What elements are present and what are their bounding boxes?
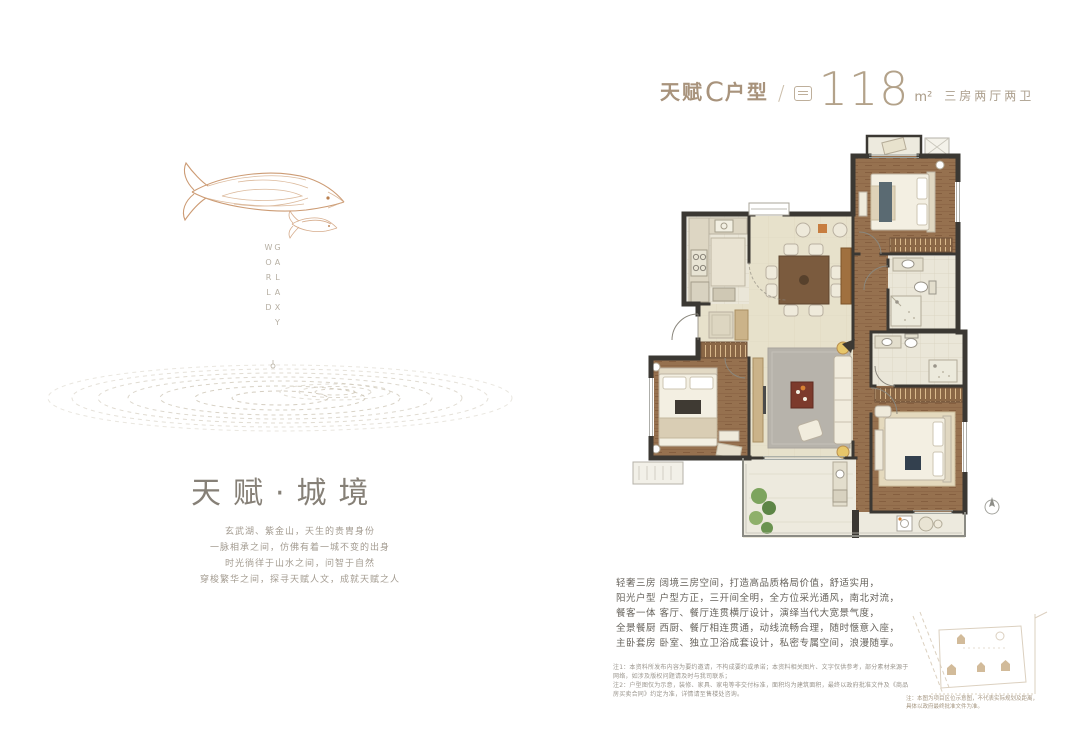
poem-line: 一脉相承之间，仿佛有着一城不变的出身	[170, 540, 430, 556]
fish-line-art	[178, 158, 358, 246]
legal-disclaimer: 注1：本资料所发布内容为要约邀请，不构成要约或承诺；本资料相关图片、文字仅供参考…	[613, 663, 909, 699]
unit-header: 天赋 C 户型 / 118 m² 三房两厅两卫	[660, 62, 1034, 112]
small-fish	[289, 211, 337, 238]
caption-line: 注：本图为项目区位示意图，不代表实际规划及距离，	[906, 695, 1061, 703]
feature-line: 轻奢三房 阔境三房空间，打造高品质格局价值，舒适实用，	[616, 576, 921, 591]
corridor-floor	[853, 254, 888, 332]
brand-poem: 玄武湖、紫金山，天生的贵胄身份 一脉相承之间，仿佛有着一城不变的出身 时光徜徉于…	[170, 524, 430, 588]
unit-type-variant: C	[704, 77, 725, 108]
feature-line: 餐客一体 客厅、餐厅连贯横厅设计，演绎当代大宽景气度，	[616, 606, 921, 621]
area-badge-icon	[794, 86, 812, 101]
poem-line: 时光徜徉于山水之间，问智于自然	[170, 556, 430, 572]
feature-description: 轻奢三房 阔境三房空间，打造高品质格局价值，舒适实用， 阳光户型 户型方正，三开…	[616, 576, 921, 651]
site-sketch-caption: 注：本图为项目区位示意图，不代表实际规划及距离， 具体以政府最终批准文件为准。	[906, 695, 1061, 711]
poem-line: 穿梭繁华之间，探寻天赋人文，成就天赋之人	[170, 572, 430, 588]
rooms-label: 三房两厅两卫	[944, 87, 1034, 104]
feature-line: 全景餐厨 西厨、餐厅相连贯通，动线流畅合理，随时惬意入座，	[616, 621, 921, 636]
caption-line: 具体以政府最终批准文件为准。	[906, 703, 1061, 711]
area-unit: m²	[914, 90, 932, 105]
master-bedroom	[875, 406, 955, 486]
disclaimer-line: 注2：户型图仅为示意，装修、家具、家电等非交付标准，面积均为建筑面积，最终以政府…	[613, 681, 909, 699]
unit-type-suffix: 户型	[725, 76, 769, 105]
floorplan-poster: 天赋 C 户型 / 118 m² 三房两厅两卫	[0, 0, 1080, 738]
poem-line: 玄武湖、紫金山，天生的贵胄身份	[170, 524, 430, 540]
page-title: 天赋·城境	[191, 468, 381, 512]
living-room	[753, 339, 855, 458]
disclaimer-line: 注1：本资料所发布内容为要约邀请，不构成要约或承诺；本资料相关图片、文字仅供参考…	[613, 663, 909, 681]
ripple-rings	[30, 360, 518, 438]
floor-plan	[613, 134, 979, 548]
ac-platform	[633, 462, 683, 484]
site-location-sketch	[903, 608, 1068, 700]
north-compass-icon	[982, 494, 1002, 518]
unit-type-prefix: 天赋	[660, 76, 704, 105]
header-separator: /	[778, 81, 785, 105]
area-value: 118	[819, 66, 910, 112]
feature-line: 阳光户型 户型方正，三开间全明，全方位采光通风，南北对流，	[616, 591, 921, 606]
feature-line: 主卧套房 卧室、独立卫浴成套设计，私密专属空间，浪漫随享。	[616, 636, 921, 651]
